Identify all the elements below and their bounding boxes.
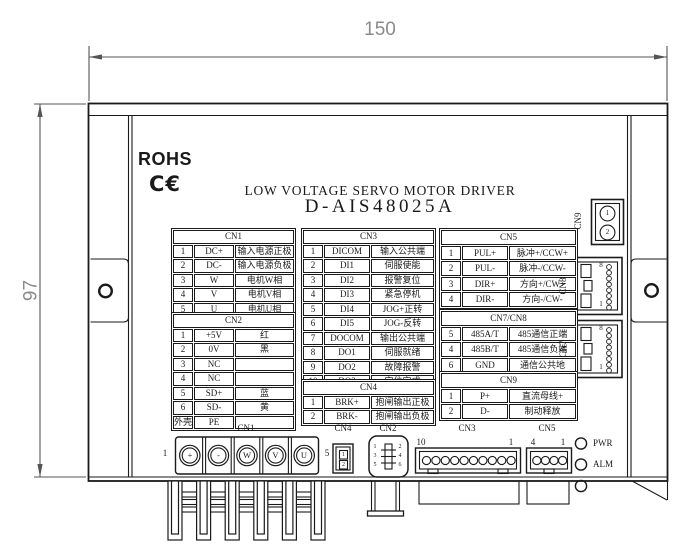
cn5-pin-table: CN5 1PUL+脉冲+/CCW+2PUL-脉冲-/CCW-3DIR+方向+/C… [439,228,578,309]
table-row: 1+5V红 [173,329,294,343]
pin-cell: 4 [441,342,461,357]
pin-cell: DI2 [324,274,370,288]
cn3-header-icon [416,448,521,474]
table-row: 3DIR+方向+/CW+ [441,277,576,292]
pin-cell: 1 [173,329,193,343]
table-row: 7DOCOM输出公共端 [303,332,434,346]
pin-cell: DI1 [324,259,370,273]
pin-cell: 4 [441,292,461,307]
pin-cell: 0V [194,343,234,357]
terminal-block-side-view [168,481,325,540]
cn3-left-pin-label: 10 [414,438,428,448]
pin-cell: 5 [173,387,193,401]
width-dimension-label: 150 [352,20,408,39]
status-led-icons [575,438,586,492]
table-row: 1BRK+抱闸输出正极 [303,396,434,410]
cn9-table-title: CN9 [441,373,576,388]
pin-cell: 8 [303,346,323,360]
cn4-table-title: CN4 [303,381,434,395]
cn2-table-title: CN2 [173,314,294,328]
table-row: 3DI2报警复位 [303,274,434,288]
pin-cell: 485B/T [462,342,508,357]
pin-cell: 报警复位 [371,274,434,288]
pin-cell: 6 [441,358,461,373]
cn3-socket-side-view [419,481,519,504]
pin-cell: DC+ [194,245,234,259]
product-model: D-AIS48025A [180,196,580,218]
pin-cell: 5 [303,303,323,317]
cn4-pin-table: CN4 1BRK+抱闸输出正极2BRK-抱闸输出负极 [301,379,436,426]
pin-cell: DOCOM [324,332,370,346]
pin-cell: NC [194,372,234,386]
pin-cell: 制动释放 [509,404,576,419]
pwr-led-icon [575,438,586,449]
pin-cell: 输入公共端 [371,245,434,259]
pin-cell: 黄 [235,401,294,415]
pin-cell: DO2 [324,361,370,375]
lower-led-icon [575,480,586,491]
table-row: 8DO1伺服就绪 [303,346,434,360]
cn1-terminal-v: V [268,451,284,460]
table-row: 1P+直流母线+ [441,389,576,404]
table-row: 4V电机V相 [173,288,294,302]
pin-cell: DC- [194,259,234,273]
height-dimension-lines [34,104,86,477]
pin-cell: BRK+ [324,396,370,410]
alm-led-label: ALM [593,460,621,470]
pin-cell: V [194,288,234,302]
cn7-side-label: CN7 [559,329,569,369]
right-mounting-tab [631,259,667,322]
pin-cell: 伺服就绪 [371,346,434,360]
pin-cell: 2 [173,259,193,273]
cn9-connector-icon [592,200,624,245]
cn4-pin2-label: 2 [340,462,348,469]
cn1-terminal-plus: + [182,451,198,460]
pin-cell: PUL- [462,261,508,276]
pin-cell: 2 [173,343,193,357]
cn2-pin2-label: 2 [396,444,404,451]
cn1-terminal-u: U [296,451,312,460]
pin-cell: 红 [235,329,294,343]
cn1-pin-table: CN1 1DC+输入电源正极2DC-输入电源负极3W电机W相4V电机V相5U电机… [171,228,296,318]
table-row: 5485A/T485通信正端 [441,327,576,342]
table-row: 3W电机W相 [173,274,294,288]
pin-cell: DI3 [324,288,370,302]
pin-cell: 485A/T [462,327,508,342]
pin-cell [235,372,294,386]
cn2-pin6-label: 6 [396,462,404,469]
table-row: 1DICOM输入公共端 [303,245,434,259]
pin-cell: 黑 [235,343,294,357]
pin-cell: 7 [303,332,323,346]
pin-cell: 1 [173,245,193,259]
pin-cell: PUL+ [462,246,508,261]
pin-cell: 紧急停机 [371,288,434,302]
right-mounting-hole-icon [645,284,658,297]
pin-cell: 输入电源正极 [235,245,294,259]
cn5-left-pin-label: 4 [527,438,539,448]
cn7-pin8-label: 8 [597,325,605,333]
table-row: 20V黑 [173,343,294,357]
technical-drawing: 150 97 ROHS C€ LOW VOLTAGE SERVO MOTOR D… [0,0,692,547]
cn5-header-icon [527,448,572,474]
left-mounting-tab [91,259,129,322]
width-dimension-lines [89,46,667,101]
cn3-right-pin-label: 1 [505,438,517,448]
table-row: 1DC+输入电源正极 [173,245,294,259]
cn8-pin1-label: 1 [597,301,605,309]
pin-cell: 输出公共端 [371,332,434,346]
pin-cell: 3 [173,358,193,372]
table-row: 2DC-输入电源负极 [173,259,294,273]
table-row: 6GND通信公共地 [441,358,576,373]
pin-cell: 2 [441,261,461,276]
pin-cell: SD- [194,401,234,415]
alm-led-icon [575,459,586,470]
table-row: 3NC [173,358,294,372]
pin-cell: JOG-反转 [371,317,434,331]
table-row: 4485B/T485通信负端 [441,342,576,357]
pin-cell: 输入电源负极 [235,259,294,273]
pin-cell: DI4 [324,303,370,317]
cn4-bottom-label: CN4 [323,424,363,434]
cn5-socket-side-view [527,481,569,504]
pin-cell: 直流母线+ [509,389,576,404]
pin-cell: GND [462,358,508,373]
pin-cell: 3 [173,274,193,288]
cn8-side-label: CN8 [559,266,569,306]
pin-cell: P+ [462,389,508,404]
pin-cell: 2 [303,410,323,424]
table-row: 2BRK-抱闸输出负极 [303,410,434,424]
pin-cell: 电机W相 [235,274,294,288]
pin-cell: 伺服使能 [371,259,434,273]
table-row: 2PUL-脉冲-/CCW- [441,261,576,276]
pin-cell: D- [462,404,508,419]
pin-cell: 故障报警 [371,361,434,375]
pin-cell: 蓝 [235,387,294,401]
pin-cell: 3 [441,277,461,292]
pin-cell: 3 [303,274,323,288]
pin-cell: 抱闸输出负极 [371,410,434,424]
pin-cell: 4 [173,288,193,302]
ce-mark-icon: C€ [149,172,181,196]
cn8-pin8-label: 8 [597,262,605,270]
cn9-pin1-label: 1 [604,210,611,218]
pin-cell: 4 [173,372,193,386]
cn2-pin1-label: 1 [371,444,379,451]
pin-cell: 1 [303,245,323,259]
cn7cn8-table-title: CN7/CN8 [441,311,576,326]
cn3-bottom-label: CN3 [447,424,487,434]
cn1-terminal-w: W [239,451,255,460]
cn7-pin1-label: 1 [597,364,605,372]
pin-cell: 5 [441,327,461,342]
pin-cell: DI5 [324,317,370,331]
cn1-first-pin-label: 1 [159,449,171,459]
pin-cell: JOG+正转 [371,303,434,317]
table-row: 5SD+蓝 [173,387,294,401]
cn2-bottom-label: CN2 [368,424,408,434]
height-dimension-label: 97 [22,276,41,306]
cn2-plug-side-view [368,481,404,516]
table-row: 4DIR-方向-/CW- [441,292,576,307]
cn2-pin3-label: 3 [371,453,379,460]
cn3-table-title: CN3 [303,230,434,244]
table-row: 5DI4JOG+正转 [303,303,434,317]
pin-cell: 4 [303,288,323,302]
pwr-led-label: PWR [593,439,621,449]
pin-cell: 电机V相 [235,288,294,302]
pin-cell: NC [194,358,234,372]
pin-cell: DIR- [462,292,508,307]
pin-cell: W [194,274,234,288]
pin-cell: 脉冲+/CCW+ [509,246,576,261]
left-mounting-hole-icon [99,285,112,298]
rohs-logo: ROHS [138,149,192,170]
table-row: 4DI3紧急停机 [303,288,434,302]
cn9-pin-table: CN9 1P+直流母线+2D-制动释放 [439,371,578,421]
pin-cell: 抱闸输出正极 [371,396,434,410]
pin-cell: SD+ [194,387,234,401]
cn9-side-label: CN9 [574,201,584,241]
pin-cell: DO1 [324,346,370,360]
pin-cell: 6 [303,317,323,331]
table-row: 2D-制动释放 [441,404,576,419]
table-row: 4NC [173,372,294,386]
pin-cell: 1 [441,389,461,404]
table-row: 6SD-黄 [173,401,294,415]
pin-cell: 2 [303,259,323,273]
cn2-pin5-label: 5 [371,462,379,469]
pin-cell: BRK- [324,410,370,424]
cn4-pin1-label: 1 [340,452,348,459]
table-row: 2DI1伺服使能 [303,259,434,273]
cn1-table-title: CN1 [173,230,294,244]
cn1-terminal-minus: - [211,451,227,460]
pin-cell: +5V [194,329,234,343]
table-row: 1PUL+脉冲+/CCW+ [441,246,576,261]
table-row: 6DI5JOG-反转 [303,317,434,331]
cn5-table-title: CN5 [441,230,576,245]
cn5-right-pin-label: 1 [557,438,569,448]
cn1-bottom-label: CN1 [226,424,266,434]
cn3-pin-table: CN3 1DICOM输入公共端2DI1伺服使能3DI2报警复位4DI3紧急停机5… [301,228,436,391]
pin-cell: 6 [173,401,193,415]
pin-cell: 1 [441,246,461,261]
cn2-pin-table: CN2 1+5V红20V黑3NC4NC5SD+蓝6SD-黄外壳PE [171,312,296,431]
pin-cell: 2 [441,404,461,419]
pin-cell: 1 [303,396,323,410]
pin-cell: 外壳 [173,416,193,430]
pin-cell [235,358,294,372]
table-row: 9DO2故障报警 [303,361,434,375]
cn9-pin2-label: 2 [604,229,611,237]
pin-cell: 9 [303,361,323,375]
pin-cell: DICOM [324,245,370,259]
cn2-pin4-label: 4 [396,453,404,460]
cn5-bottom-label: CN5 [527,424,567,434]
cn1-last-pin-label: 5 [321,449,333,459]
pin-cell: DIR+ [462,277,508,292]
